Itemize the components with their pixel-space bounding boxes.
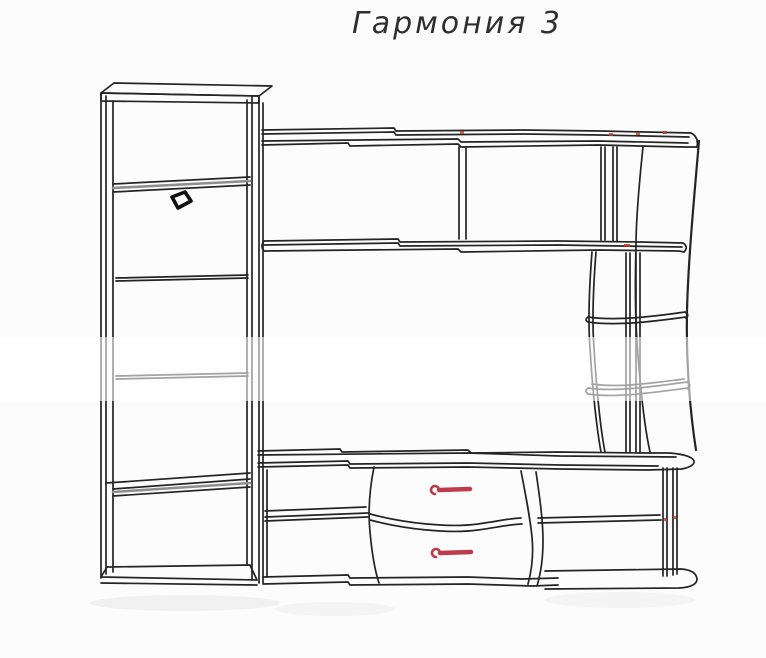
drawer-handle-top-icon <box>439 489 470 490</box>
curved-side-shelf-unit <box>586 141 699 453</box>
drawer-handle-bottom-icon <box>440 552 471 553</box>
stand-bottom <box>263 569 697 589</box>
upper-wall-shelves <box>262 128 697 252</box>
stand-right-supports <box>663 468 677 576</box>
paper-smudges <box>90 592 695 616</box>
drawer-right-edge <box>521 471 543 586</box>
stand-top <box>258 449 694 470</box>
shelf-divider-center <box>459 147 466 239</box>
top-shelf <box>262 128 697 147</box>
tv-stand <box>258 449 697 589</box>
drawing-canvas <box>0 0 766 658</box>
drawer-handle-top-curl <box>431 486 439 494</box>
cabinet-top-band <box>101 93 259 103</box>
flap-handle-icon <box>172 192 191 208</box>
red-assembly-marks <box>460 131 676 521</box>
side-shelf-1 <box>586 312 688 324</box>
furniture-diagram: Гармония 3 <box>0 0 766 658</box>
stand-right-shelf <box>538 515 661 523</box>
cabinet-shelf-upper-shade <box>113 181 250 188</box>
left-cabinet <box>101 83 272 585</box>
shelf-dividers-right <box>601 147 617 241</box>
drawer-handle-bottom-curl <box>432 549 440 557</box>
cabinet-bottom <box>101 565 257 585</box>
drawer-left-edge <box>369 467 379 583</box>
stand-left-shelf <box>265 507 368 521</box>
drawer-unit <box>369 467 543 586</box>
curved-outer-panel <box>687 141 699 450</box>
curved-inner-panel <box>635 147 650 452</box>
drawer-divider-wave <box>370 514 522 531</box>
second-shelf <box>262 239 686 252</box>
watermark-band <box>0 337 766 401</box>
